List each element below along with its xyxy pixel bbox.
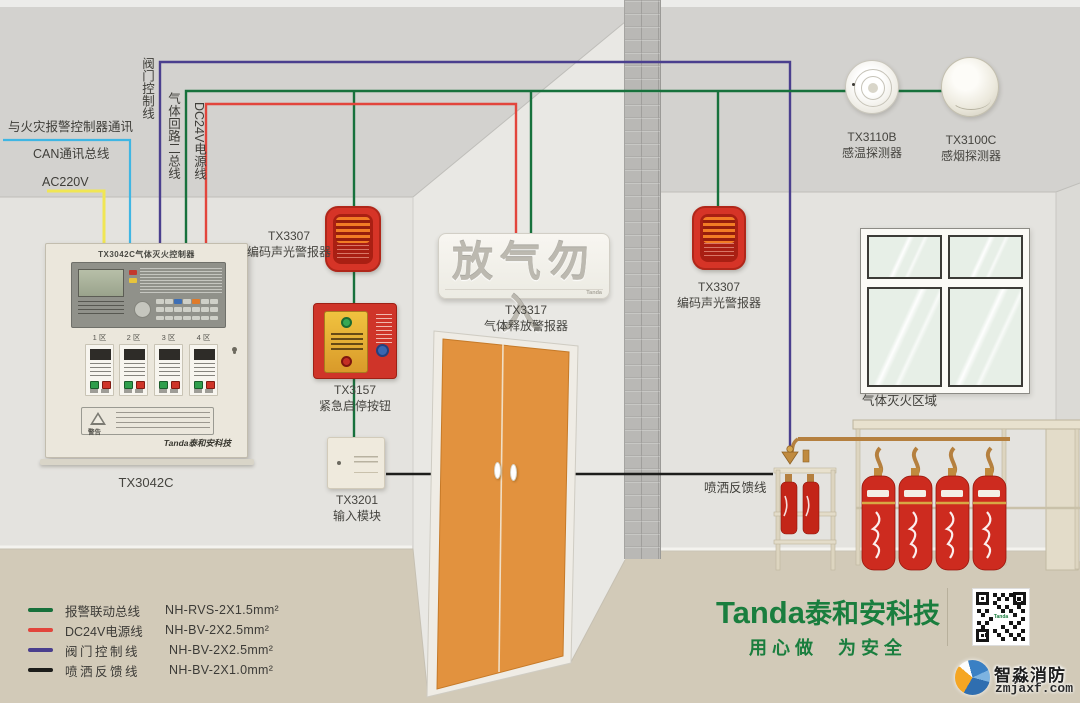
fire-indicator — [129, 270, 137, 275]
ac220v-wire — [47, 191, 104, 244]
fire-panel-comm-label: 与火灾报警控制器通讯 — [8, 120, 133, 135]
door-handle-right — [510, 464, 517, 481]
panel-warning-box: 警告 — [81, 407, 214, 435]
zone-3-label: 3 区 — [154, 332, 183, 343]
panel-title: TX3042C气体灭火控制器 — [46, 249, 247, 260]
legend-swatch-spray — [28, 668, 53, 672]
qr-code: Tanda — [972, 588, 1030, 646]
panel-model-label: TX3042C — [96, 475, 196, 492]
warning-text: 警告 — [88, 426, 101, 436]
legend-row: DC24V电源线 NH-BV-2X2.5mm² — [28, 622, 269, 638]
watermark: 智淼消防 zmjaxf.com — [953, 658, 1078, 700]
smoke-detector-label: TX3100C 感烟探测器 — [916, 133, 1026, 164]
panel-dpad — [134, 301, 151, 318]
ac220v-label: AC220V — [42, 175, 89, 190]
sounder-left-label: TX3307 编码声光警报器 — [246, 229, 332, 260]
panel-base — [40, 459, 254, 465]
sounder-strobe-right — [692, 206, 746, 270]
heat-detector — [845, 60, 899, 114]
dc24v-label: DC24V电源线 — [192, 102, 206, 180]
protected-zone-window — [860, 228, 1030, 394]
zone-1-label: 1 区 — [85, 332, 114, 343]
gas-loop-label: 气体回路二总线 — [166, 92, 180, 180]
panel-keypad — [156, 299, 222, 323]
footer-brand: Tanda泰和安科技 用心做 为安全 — [703, 592, 953, 660]
room-door — [418, 323, 586, 703]
sign-text: 放气勿入 — [439, 236, 609, 288]
footer-divider — [947, 588, 948, 646]
emergency-stop-button — [313, 303, 397, 379]
warning-triangle-icon — [90, 412, 106, 425]
seal-button — [376, 344, 389, 357]
legend-swatch-dc24v — [28, 628, 53, 632]
brand-en: Tanda — [716, 595, 805, 630]
fault-indicator — [129, 278, 137, 283]
gas-suppression-system-diagram: 与火灾报警控制器通讯 CAN通讯总线 AC220V 阀门控制线 气体回路二总线 … — [0, 0, 1080, 703]
door-handle-left — [494, 462, 501, 479]
indicator-grid — [140, 268, 222, 294]
gas-release-sign: 放气勿入 Tanda — [438, 233, 610, 299]
zone-4-label: 4 区 — [189, 332, 218, 343]
panel-lcd-labels — [78, 301, 124, 317]
gas-control-panel: TX3042C气体灭火控制器 1 区 2 区 3 区 4 区 — [45, 243, 248, 458]
panel-lcd-screen — [78, 269, 124, 297]
stop-button — [341, 356, 352, 367]
watermark-site: zmjaxf.com — [995, 681, 1073, 696]
release-sign-label: TX3317 气体释放警报器 — [478, 303, 574, 334]
sign-brand: Tanda — [586, 290, 602, 296]
input-module — [327, 437, 385, 489]
valve-control-label: 阀门控制线 — [140, 57, 154, 120]
warning-paragraph — [116, 412, 210, 432]
heat-detector-label: TX3110B 感温探测器 — [820, 130, 924, 161]
brand-cn: 泰和安科技 — [805, 599, 940, 629]
panel-keyhole — [232, 347, 237, 352]
legend-row: 报警联动总线 NH-RVS-2X1.5mm² — [28, 602, 279, 618]
legend-row: 喷洒反馈线 NH-BV-2X1.0mm² — [28, 662, 273, 678]
zone-3-module — [154, 344, 183, 396]
smoke-detector — [941, 57, 999, 117]
panel-brand-logo: Tanda泰和安科技 — [164, 437, 231, 449]
zone-1-module — [85, 344, 114, 396]
legend-swatch-alarm-bus — [28, 608, 53, 612]
zone-2-label: 2 区 — [119, 332, 148, 343]
sounder-right-label: TX3307 编码声光警报器 — [663, 280, 775, 311]
panel-display-bezel — [71, 262, 226, 328]
input-module-label: TX3201 输入模块 — [326, 493, 388, 524]
legend-row: 阀门控制线 NH-BV-2X2.5mm² — [28, 642, 273, 658]
sounder-strobe-left — [325, 206, 381, 272]
can-bus-label: CAN通讯总线 — [33, 147, 109, 162]
stop-button-label: TX3157 紧急启停按钮 — [305, 383, 405, 414]
zone-4-module — [189, 344, 218, 396]
zone-area-label: 气体灭火区域 — [862, 394, 937, 409]
cylinder-assembly — [648, 412, 1080, 577]
qr-center-logo: Tanda — [993, 613, 1009, 621]
legend-swatch-valve — [28, 648, 53, 652]
brand-slogan: 用心做 为安全 — [703, 634, 953, 660]
watermark-logo-icon — [955, 660, 990, 695]
start-button — [341, 317, 352, 328]
zone-2-module — [119, 344, 148, 396]
